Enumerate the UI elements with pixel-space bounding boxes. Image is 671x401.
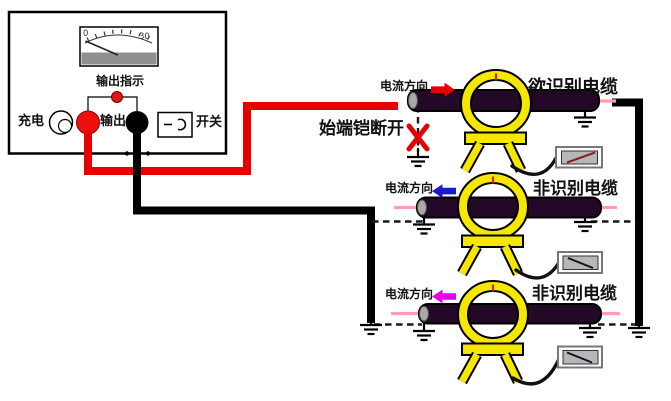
row1-cable-label: 欲识别电缆	[528, 78, 618, 98]
charge-label: 充电	[18, 115, 44, 129]
ground-black-wire-left	[360, 316, 382, 334]
cable-end-cap	[420, 306, 429, 321]
galvanometer-row2	[558, 252, 602, 273]
row2-direction-label: 电流方向	[385, 182, 433, 195]
cable-end-cap	[418, 200, 427, 215]
diagram-canvas: 0 30 输出指示 充电 输出 开关 电流方向 欲识别电缆 始端铠断开 电流方向…	[0, 0, 671, 401]
galvanometer-row1	[556, 147, 602, 168]
meter-bottom-bar	[82, 53, 157, 65]
broken-armor-label: 始端铠断开	[319, 120, 404, 139]
charge-port-icon	[50, 111, 73, 134]
row1-direction-label: 电流方向	[380, 80, 428, 93]
row3-cable-label: 非识别电缆	[532, 285, 617, 304]
power-switch-icon	[158, 113, 192, 138]
current-arrow-row3-left	[432, 290, 456, 304]
clamp-ct-row3	[462, 285, 523, 382]
cable-row2	[417, 198, 601, 218]
meter-scale-max: 30	[139, 33, 150, 42]
clamp-ct-row1	[465, 74, 526, 171]
indicator-dot	[112, 92, 123, 103]
row2-cable-label: 非识别电缆	[533, 180, 618, 199]
galvanometer-row3	[558, 347, 602, 368]
meter-scale-min: 0	[83, 30, 88, 39]
switch-label: 开关	[196, 116, 222, 130]
ground-row3-left	[413, 322, 435, 340]
ground-black-wire-right	[628, 319, 650, 337]
cable-row3	[419, 304, 601, 324]
diagram-graphics	[0, 0, 671, 401]
current-arrow-row2-left	[432, 184, 456, 198]
junction-dot	[146, 151, 150, 155]
output-indicator-label: 输出指示	[96, 75, 144, 88]
output-label: 输出	[100, 115, 126, 129]
cable-end-cap	[409, 93, 418, 109]
black-test-lead-wire	[137, 130, 371, 323]
row3-direction-label: 电流方向	[385, 288, 433, 301]
clamp-ct-row2	[462, 177, 523, 274]
junction-dot	[125, 151, 129, 155]
galvo-wire-row3	[513, 359, 559, 384]
